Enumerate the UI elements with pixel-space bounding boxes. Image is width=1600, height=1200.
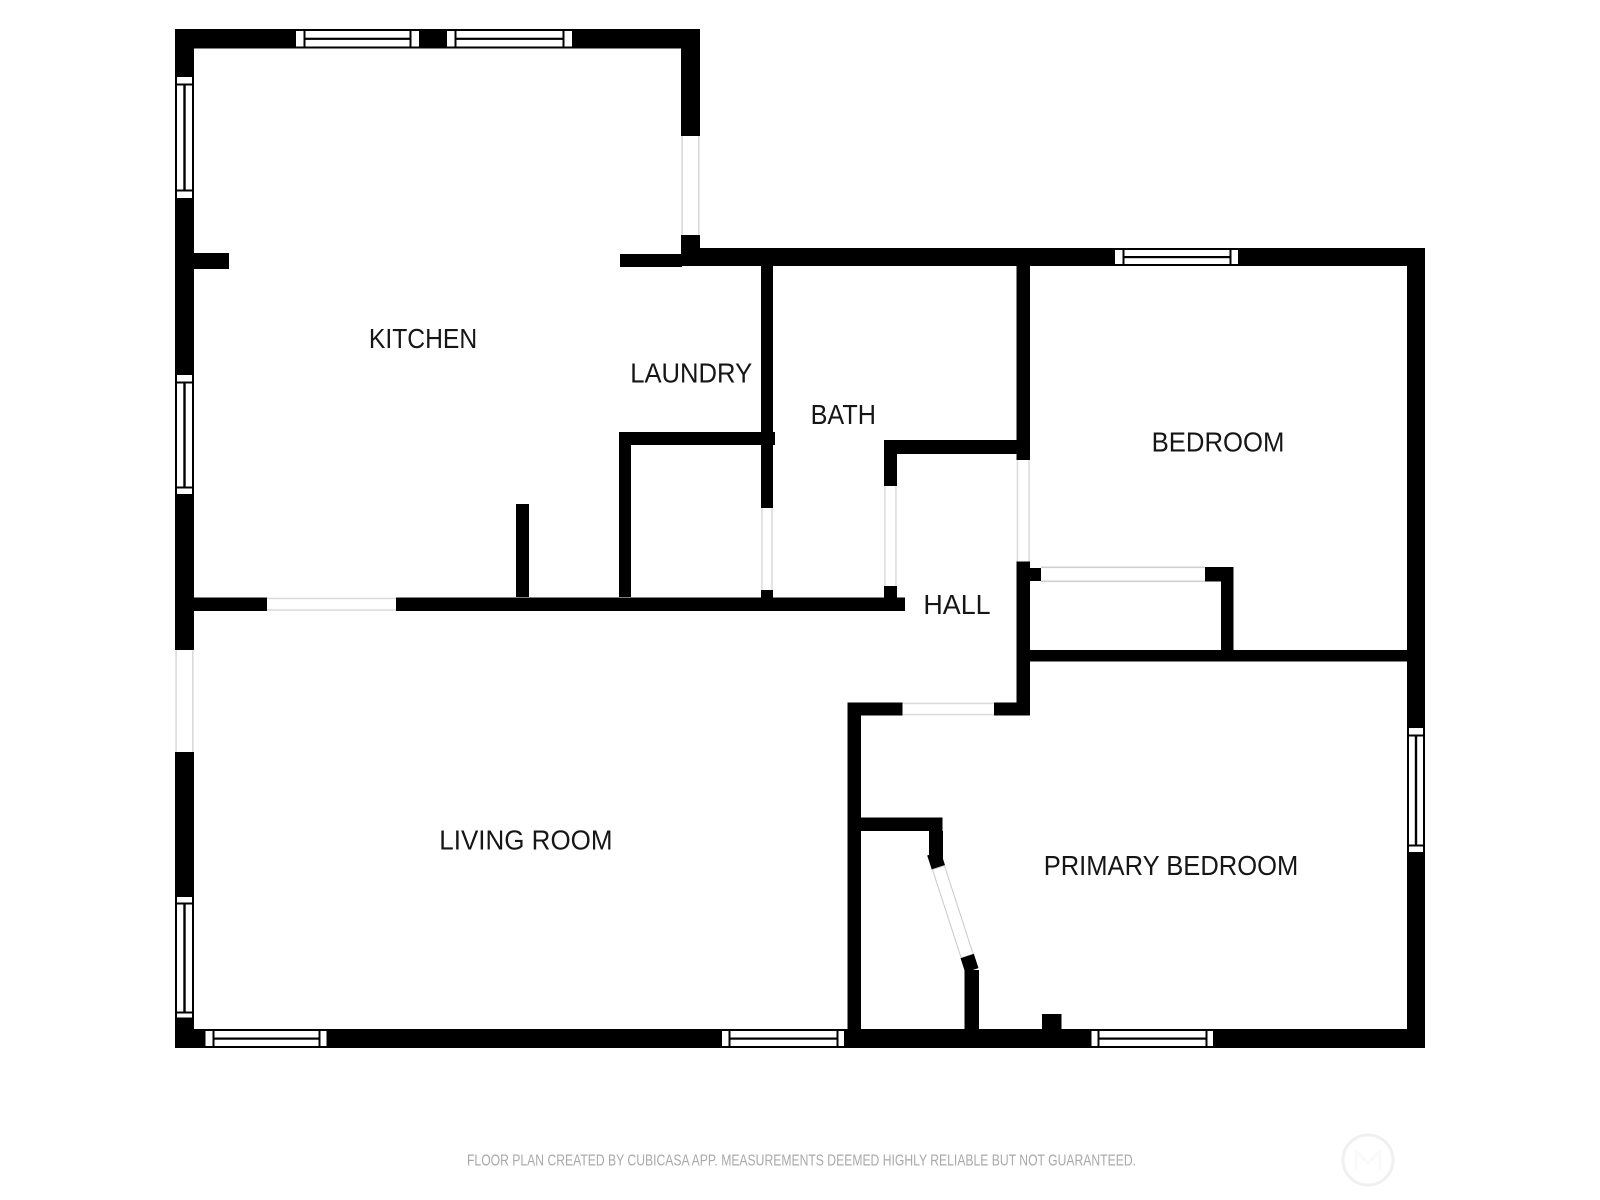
svg-text:BATH: BATH xyxy=(811,399,876,430)
svg-text:HALL: HALL xyxy=(923,589,990,620)
svg-text:LIVING ROOM: LIVING ROOM xyxy=(439,824,612,855)
svg-text:KITCHEN: KITCHEN xyxy=(369,323,477,354)
svg-text:BEDROOM: BEDROOM xyxy=(1152,427,1285,458)
svg-text:FLOOR PLAN CREATED BY CUBICASA: FLOOR PLAN CREATED BY CUBICASA APP. MEAS… xyxy=(467,1152,1136,1169)
svg-text:PRIMARY BEDROOM: PRIMARY BEDROOM xyxy=(1044,850,1299,881)
svg-text:LAUNDRY: LAUNDRY xyxy=(630,358,752,389)
